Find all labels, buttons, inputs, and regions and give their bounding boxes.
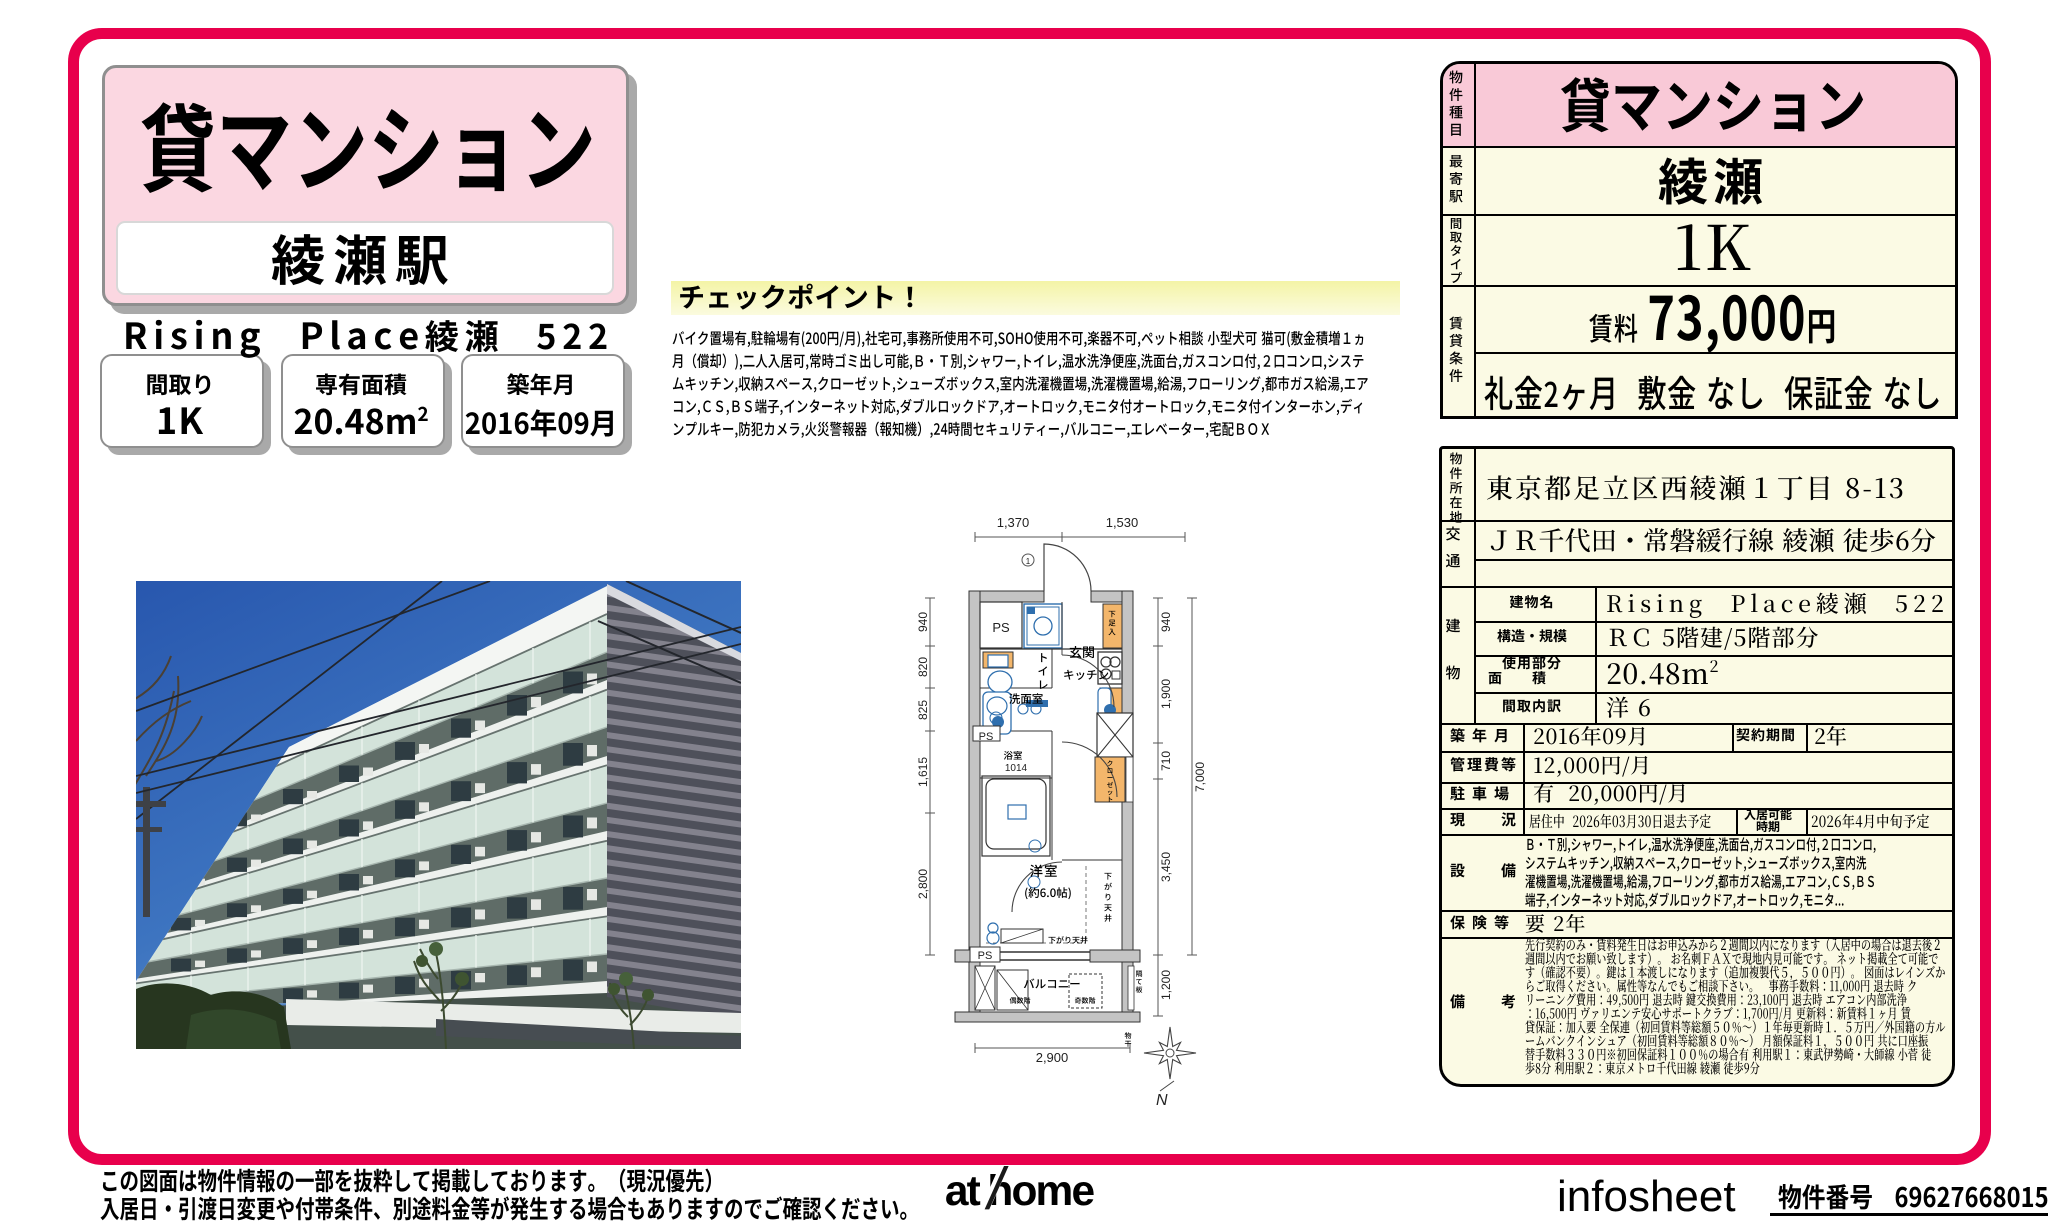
svg-text:710: 710 (1159, 751, 1173, 771)
svg-text:2,900: 2,900 (1036, 1050, 1069, 1065)
svg-text:1014: 1014 (1005, 763, 1028, 774)
svg-text:PS: PS (978, 950, 993, 962)
svg-text:2,800: 2,800 (916, 869, 930, 899)
svg-text:1,200: 1,200 (1159, 970, 1173, 1000)
svg-text:1,615: 1,615 (916, 757, 930, 787)
svg-text:7,000: 7,000 (1193, 762, 1207, 792)
svg-text:820: 820 (916, 657, 930, 677)
svg-text:N: N (1156, 1092, 1168, 1109)
svg-text:1: 1 (1026, 557, 1031, 566)
svg-text:PS: PS (992, 620, 1010, 635)
svg-text:1,900: 1,900 (1159, 679, 1173, 709)
svg-text:1,370: 1,370 (997, 515, 1030, 530)
svg-text:3,450: 3,450 (1159, 852, 1173, 882)
svg-text:PS: PS (979, 731, 994, 743)
svg-text:825: 825 (916, 700, 930, 720)
svg-text:1,530: 1,530 (1106, 515, 1139, 530)
svg-text:at: at (945, 1167, 981, 1214)
svg-text:940: 940 (1159, 612, 1173, 632)
svg-text:940: 940 (916, 612, 930, 632)
